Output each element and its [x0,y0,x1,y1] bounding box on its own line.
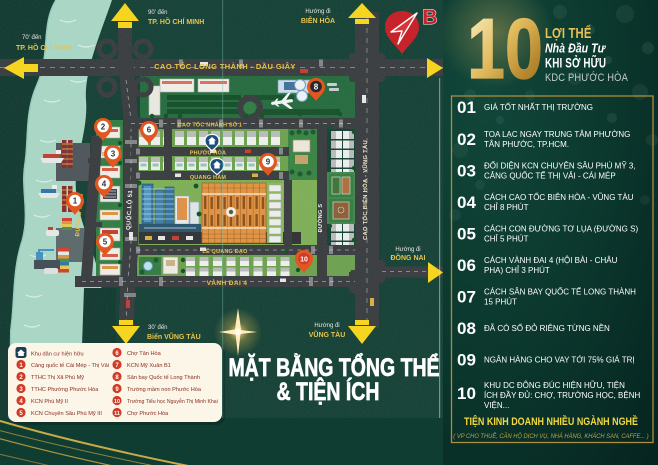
svg-text:CAO TỐC NHÁNH SỐ 1: CAO TỐC NHÁNH SỐ 1 [178,121,242,128]
svg-text:ĐỐI DIỆN KCN CHUYÊN SÂU PHÚ MỸ: ĐỐI DIỆN KCN CHUYÊN SÂU PHÚ MỸ 3, [484,161,636,171]
svg-text:90' đến: 90' đến [148,10,168,16]
svg-text:VŨNG TÀU: VŨNG TÀU [309,330,346,339]
svg-text:4: 4 [102,179,107,188]
svg-text:8: 8 [314,82,319,91]
svg-text:TÂN PHƯỚC, TP.HCM.: TÂN PHƯỚC, TP.HCM. [484,140,569,149]
svg-text:KCN Phú Mỹ II: KCN Phú Mỹ II [31,399,68,405]
svg-text:KHU DC ĐÔNG ĐÚC HIỆN HỮU, TIỆN: KHU DC ĐÔNG ĐÚC HIỆN HỮU, TIỆN [484,381,625,390]
svg-text:Nhà Đầu Tư: Nhà Đầu Tư [545,40,607,55]
svg-text:9: 9 [266,157,271,166]
svg-text:Hướng đi: Hướng đi [314,323,339,329]
svg-text:Biển VŨNG TÀU: Biển VŨNG TÀU [147,332,201,341]
svg-text:CAO TỐC BIÊN HÒA - VŨNG TÀU: CAO TỐC BIÊN HÒA - VŨNG TÀU [361,140,369,240]
svg-text:( VP CHO THUÊ, CĂN HỘ DỊCH VỤ,: ( VP CHO THUÊ, CĂN HỘ DỊCH VỤ, NHÀ HÀNG,… [453,432,648,440]
svg-text:08: 08 [457,319,476,338]
svg-text:3: 3 [111,149,116,158]
svg-text:05: 05 [457,225,476,244]
svg-text:KHI SỞ HỮU: KHI SỞ HỮU [545,55,606,71]
svg-text:CÁCH VÀNH ĐAI 4 (HỘI BÀI - CHÂ: CÁCH VÀNH ĐAI 4 (HỘI BÀI - CHÂU [484,256,618,265]
svg-text:ĐÃ CÓ SỔ ĐỎ RIÊNG TỪNG NỀN: ĐÃ CÓ SỔ ĐỎ RIÊNG TỪNG NỀN [484,323,610,333]
svg-text:TTHC Thị Xã Phú Mỹ: TTHC Thị Xã Phú Mỹ [31,375,84,381]
svg-text:04: 04 [457,193,476,212]
svg-text:& TIỆN ÍCH: & TIỆN ÍCH [277,378,380,406]
svg-text:02: 02 [457,130,476,149]
svg-text:CHỈ 5 PHÚT: CHỈ 5 PHÚT [484,235,529,244]
svg-text:LÊ QUANG ĐẠO: LÊ QUANG ĐẠO [202,247,248,255]
svg-text:TOA LẠC NGAY TRUNG TÂM PHƯỜNG: TOA LẠC NGAY TRUNG TÂM PHƯỜNG [484,130,630,139]
svg-text:Cảng quốc tế Cái Mép - Thị Vải: Cảng quốc tế Cái Mép - Thị Vải [31,363,109,369]
svg-text:KCN Mỹ Xuân B1: KCN Mỹ Xuân B1 [127,363,171,369]
svg-text:KDC PHƯỚC HÒA: KDC PHƯỚC HÒA [545,70,628,84]
svg-text:6: 6 [147,125,152,134]
svg-text:ĐƯỜNG S: ĐƯỜNG S [316,204,324,233]
svg-text:01: 01 [457,98,476,117]
svg-text:10: 10 [467,2,543,97]
svg-text:10: 10 [300,256,308,263]
svg-text:TTHC Phường Phước Hòa: TTHC Phường Phước Hòa [31,387,99,393]
svg-text:CAO TỐC LONG THÀNH - DẦU GIÂY: CAO TỐC LONG THÀNH - DẦU GIÂY [154,61,296,71]
svg-text:Trường Tiểu học Nguyễn Thị Min: Trường Tiểu học Nguyễn Thị Minh Khai [127,398,218,405]
svg-text:B: B [422,6,437,29]
svg-text:VIỆN...: VIỆN... [484,401,509,410]
svg-text:1: 1 [73,196,78,205]
svg-text:30' đến: 30' đến [148,325,168,331]
svg-text:Sân bay Quốc tế Long Thành: Sân bay Quốc tế Long Thành [127,375,200,381]
svg-text:BIÊN HÒA: BIÊN HÒA [301,16,335,25]
svg-text:CHỈ 8 PHÚT: CHỈ 8 PHÚT [484,203,529,212]
svg-text:10: 10 [457,384,476,403]
svg-text:06: 06 [457,256,476,275]
svg-text:Khu dân cư hiện hữu: Khu dân cư hiện hữu [31,352,84,358]
svg-text:11: 11 [114,411,120,417]
svg-text:LỢI THẾ: LỢI THẾ [545,25,592,42]
svg-text:QUANG HÀM: QUANG HÀM [190,174,227,181]
svg-text:GIÁ TỐT NHẤT THỊ TRƯỜNG: GIÁ TỐT NHẤT THỊ TRƯỜNG [484,102,593,112]
svg-text:2: 2 [101,122,106,131]
svg-text:ÍCH ĐẦY ĐỦ: CHỢ, TRƯỜNG HỌC, B: ÍCH ĐẦY ĐỦ: CHỢ, TRƯỜNG HỌC, BỆNH [484,390,640,400]
svg-text:CẢNG QUỐC TẾ THỊ VẢI - CÁI MÉP: CẢNG QUỐC TẾ THỊ VẢI - CÁI MÉP [484,171,616,181]
svg-text:CÁCH CAO TỐC BIÊN HÒA - VŨNG T: CÁCH CAO TỐC BIÊN HÒA - VŨNG TÀU [484,192,634,202]
svg-text:NGÂN HÀNG CHO VAY TỚI 75% GIÁ: NGÂN HÀNG CHO VAY TỚI 75% GIÁ TRỊ [484,356,635,365]
svg-text:CÁCH SÂN BAY QUỐC TẾ LONG THÀN: CÁCH SÂN BAY QUỐC TẾ LONG THÀNH [484,287,636,297]
svg-text:5: 5 [103,237,108,246]
svg-text:Trường mầm non Phước Hòa: Trường mầm non Phước Hòa [127,387,202,393]
svg-text:PHA) CHỈ 3 PHÚT: PHA) CHỈ 3 PHÚT [484,266,550,275]
svg-text:10: 10 [114,399,120,405]
svg-text:Chợ Tân Hòa: Chợ Tân Hòa [127,351,162,357]
svg-text:KCN Chuyên Sâu Phú Mỹ III: KCN Chuyên Sâu Phú Mỹ III [31,411,102,417]
svg-text:07: 07 [457,288,476,307]
svg-text:Hướng đi: Hướng đi [395,247,420,253]
svg-text:09: 09 [457,351,476,370]
svg-text:Chợ Phước Hòa: Chợ Phước Hòa [127,411,169,417]
svg-text:TIỆN KINH DOANH NHIỀU NGÀNH NG: TIỆN KINH DOANH NHIỀU NGÀNH NGHỀ [464,415,638,428]
svg-text:70' đến: 70' đến [22,35,42,41]
svg-text:15 PHÚT: 15 PHÚT [484,298,517,307]
svg-text:03: 03 [457,162,476,181]
svg-text:CÁCH CON ĐƯỜNG TƠ LỤA (ĐƯỜNG S: CÁCH CON ĐƯỜNG TƠ LỤA (ĐƯỜNG S) [484,225,638,234]
svg-text:VÀNH ĐAI 4: VÀNH ĐAI 4 [207,278,248,287]
svg-text:Hướng đi: Hướng đi [305,9,330,15]
svg-text:PHƯỚC HÒA: PHƯỚC HÒA [190,148,226,156]
